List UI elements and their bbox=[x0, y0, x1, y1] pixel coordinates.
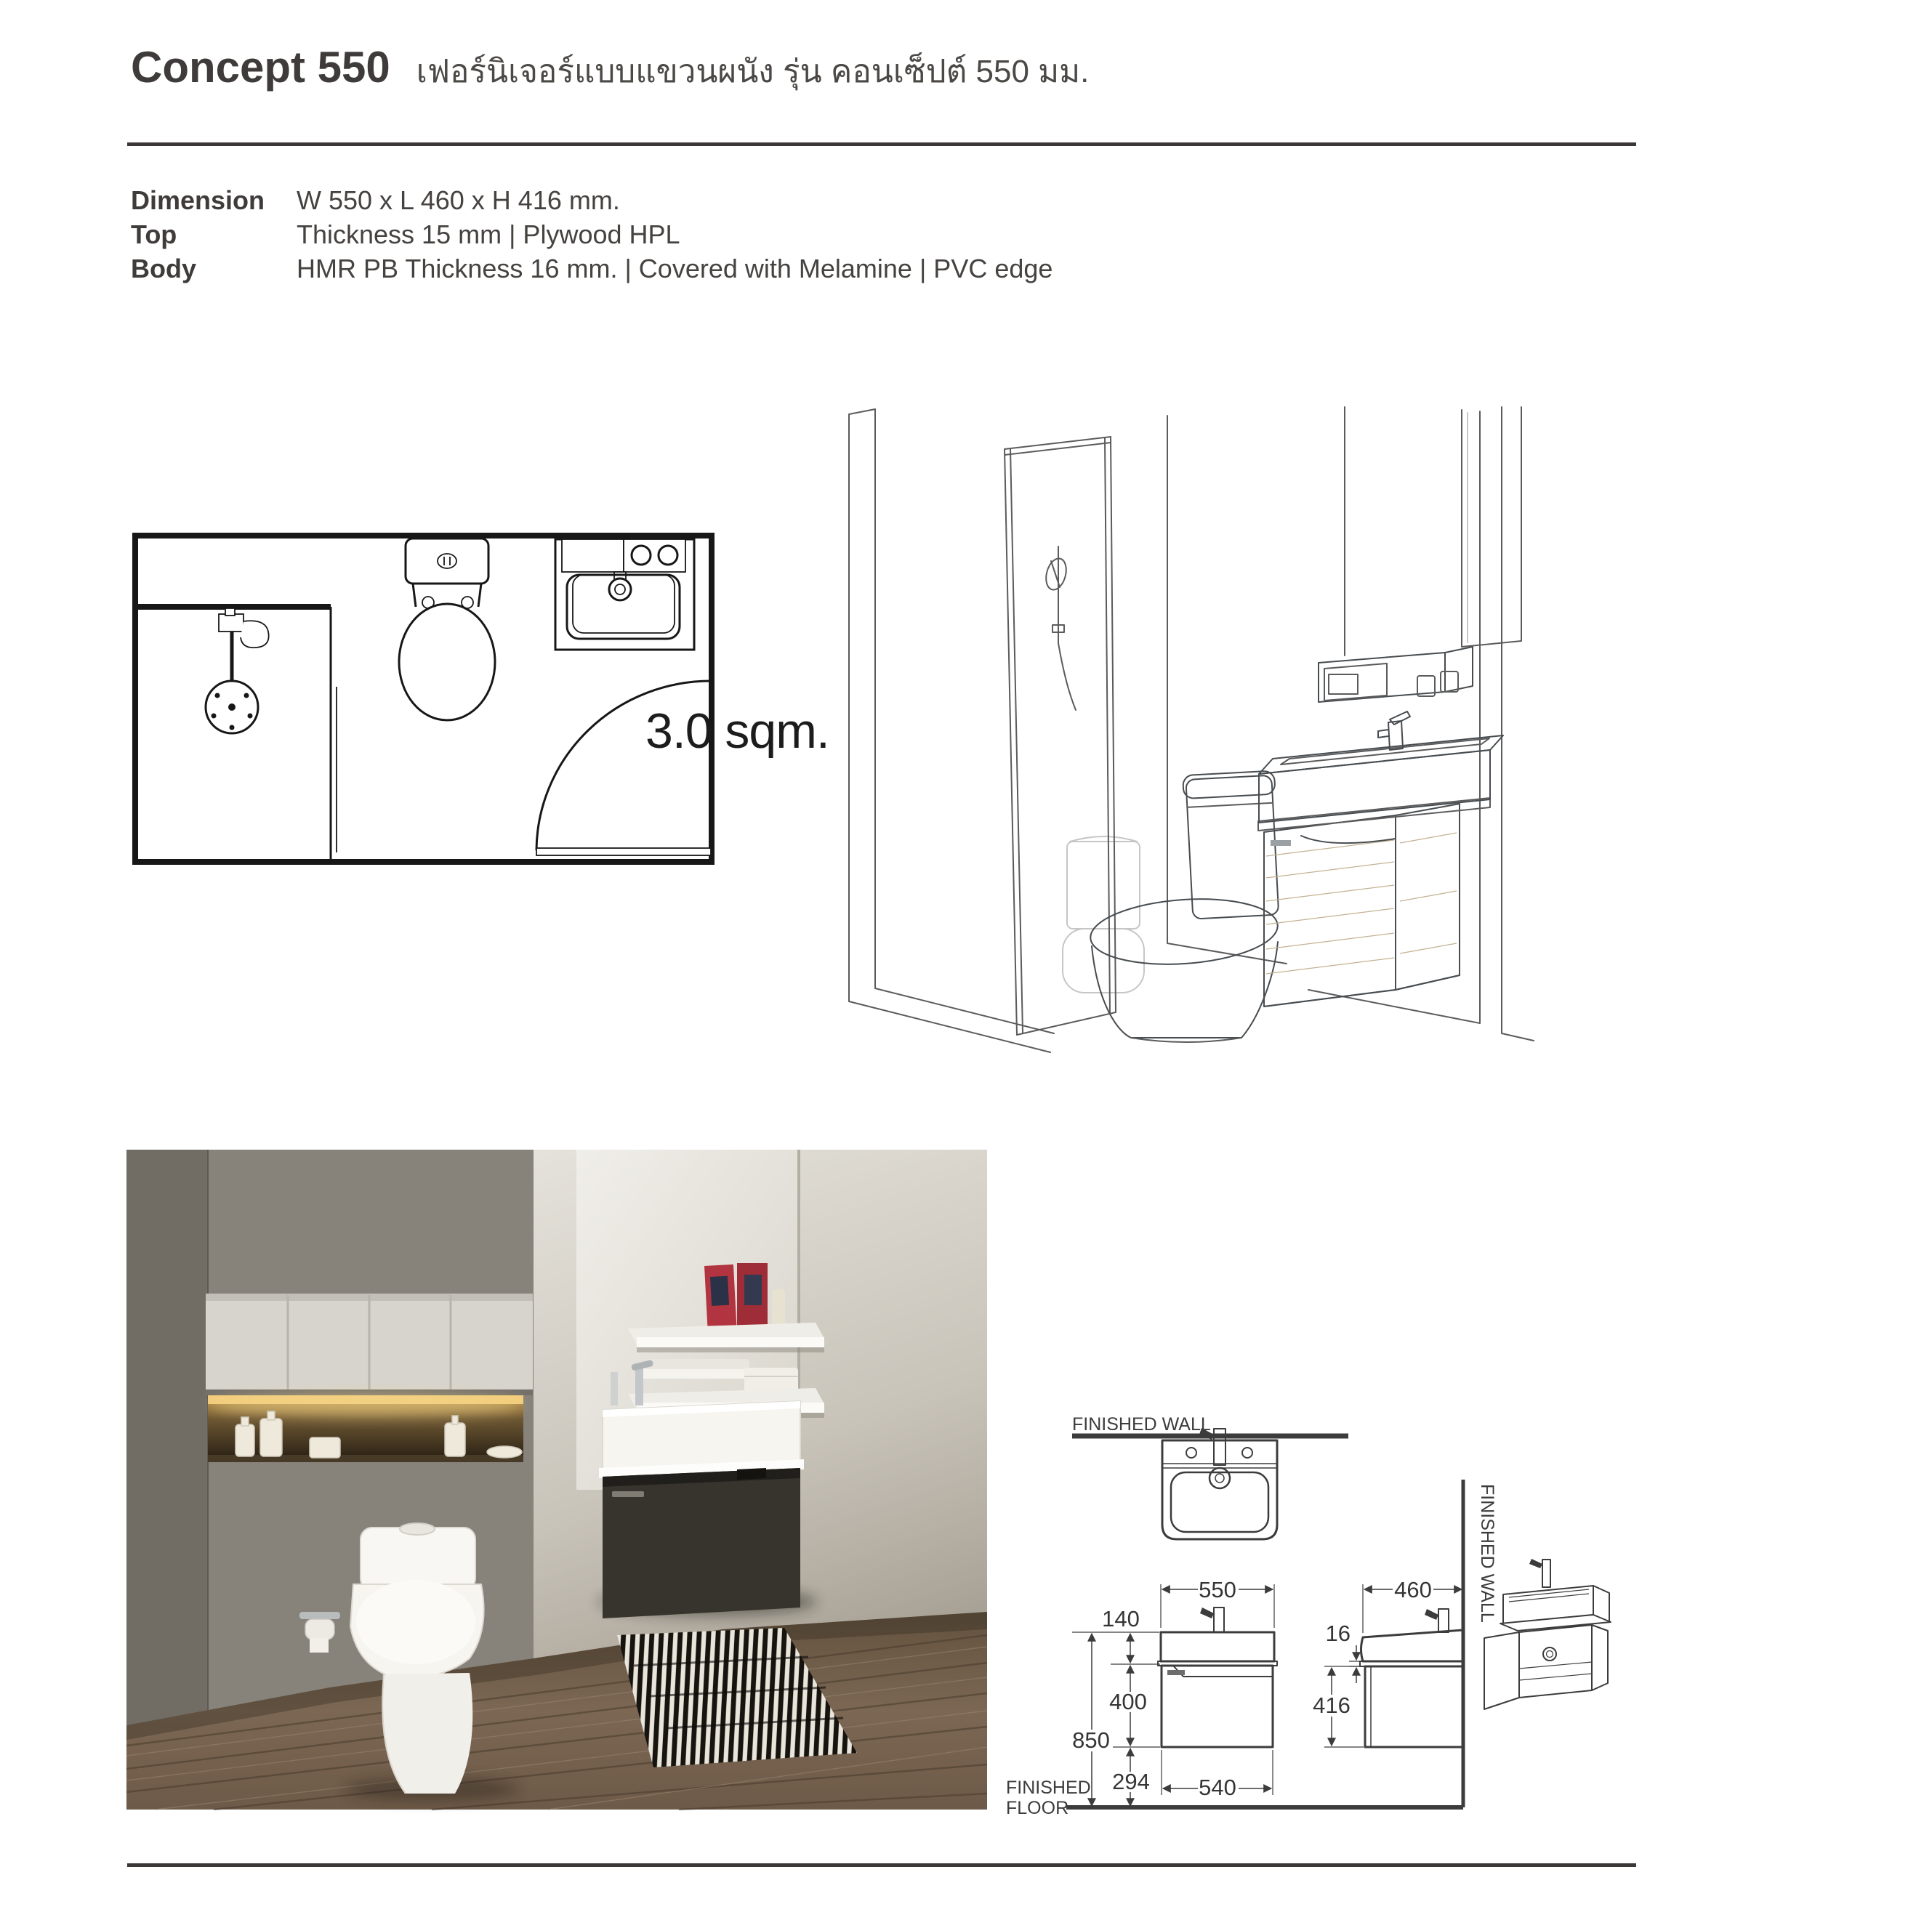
svg-text:140: 140 bbox=[1102, 1606, 1140, 1631]
header-divider bbox=[127, 142, 1636, 146]
sketch-shower-glass bbox=[1005, 437, 1116, 1035]
sketch-vanity-basin bbox=[1258, 711, 1503, 831]
photo-cabinet-logo bbox=[612, 1491, 644, 1497]
floorplan-area-label: 3.0 sqm. bbox=[645, 703, 829, 759]
sketch-cabinet-logo bbox=[1271, 840, 1291, 846]
sketch-hand-shower-icon bbox=[1043, 546, 1076, 710]
spec-value-top: Thickness 15 mm | Plywood HPL bbox=[297, 217, 680, 251]
page-title: Concept 550 bbox=[131, 42, 390, 92]
spec-row-top: Top Thickness 15 mm | Plywood HPL bbox=[131, 217, 1052, 251]
dim-460: 460 bbox=[1363, 1577, 1462, 1633]
svg-text:294: 294 bbox=[1112, 1769, 1150, 1794]
spec-label-dimension: Dimension bbox=[131, 183, 297, 217]
dim-540: 540 bbox=[1162, 1750, 1273, 1800]
spec-value-body: HMR PB Thickness 16 mm. | Covered with M… bbox=[297, 251, 1052, 286]
dim-294: 294 bbox=[1112, 1748, 1151, 1806]
photo-upper-cabinets bbox=[206, 1294, 533, 1395]
svg-text:16: 16 bbox=[1326, 1621, 1351, 1646]
finished-floor-label-line1: FINISHED bbox=[1006, 1778, 1091, 1798]
photo-gray-wall-left-panel bbox=[126, 1150, 208, 1725]
spec-label-top: Top bbox=[131, 217, 297, 251]
finished-wall-side-label: FINISHED WALL bbox=[1477, 1484, 1497, 1623]
isometric-cabinet-view bbox=[1484, 1559, 1611, 1709]
spec-label-body: Body bbox=[131, 251, 297, 286]
floorplan-shower-head-icon bbox=[206, 607, 269, 733]
svg-text:460: 460 bbox=[1394, 1577, 1432, 1602]
finished-wall-top-label: FINISHED WALL bbox=[1072, 1414, 1211, 1435]
dim-140: 140 bbox=[1072, 1606, 1160, 1664]
svg-text:416: 416 bbox=[1313, 1693, 1351, 1718]
svg-text:850: 850 bbox=[1072, 1727, 1110, 1753]
page-subtitle-thai: เฟอร์นิเจอร์แบบแขวนผนัง รุ่น คอนเซ็ปต์ 5… bbox=[416, 46, 1090, 97]
spec-table: Dimension W 550 x L 460 x H 416 mm. Top … bbox=[131, 183, 1052, 286]
catalog-page: Concept 550 เฟอร์นิเจอร์แบบแขวนผนัง รุ่น… bbox=[0, 0, 1932, 1920]
dim-400: 400 bbox=[1108, 1666, 1160, 1747]
basin-front-view bbox=[1162, 1428, 1277, 1539]
footer-divider bbox=[127, 1863, 1636, 1867]
sketch-wall-shelf bbox=[1319, 647, 1473, 702]
photo-niche bbox=[208, 1394, 523, 1462]
svg-text:550: 550 bbox=[1199, 1577, 1236, 1602]
page-header: Concept 550 เฟอร์นิเจอร์แบบแขวนผนัง รุ่น… bbox=[131, 42, 1089, 97]
sketch-vanity-cabinet bbox=[1264, 804, 1460, 1007]
spec-row-body: Body HMR PB Thickness 16 mm. | Covered w… bbox=[131, 251, 1052, 286]
spec-value-dimension: W 550 x L 460 x H 416 mm. bbox=[297, 183, 620, 217]
bathroom-photo bbox=[126, 1150, 987, 1810]
floorplan-toilet-icon bbox=[399, 539, 495, 720]
sketch-toilet-behind-glass bbox=[1063, 836, 1144, 993]
svg-text:540: 540 bbox=[1199, 1775, 1236, 1800]
dim-416: 416 bbox=[1311, 1666, 1364, 1747]
sketch-faucet-icon bbox=[1378, 711, 1410, 750]
sketch-toilet bbox=[1088, 771, 1281, 1042]
bathroom-3d-sketch bbox=[836, 407, 1534, 1054]
floorplan-sink-icon bbox=[555, 539, 694, 650]
dim-550: 550 bbox=[1161, 1577, 1274, 1628]
dimension-drawing: FINISHED WALL bbox=[996, 1403, 1686, 1853]
floor-plan-drawing: 3.0 sqm. bbox=[132, 533, 715, 865]
finished-floor-label-line2: FLOOR bbox=[1006, 1798, 1068, 1818]
svg-text:400: 400 bbox=[1109, 1689, 1147, 1714]
sketch-room-lines bbox=[849, 407, 1534, 1052]
vanity-front-view bbox=[1158, 1608, 1277, 1747]
sketch-mirror bbox=[1462, 407, 1521, 647]
vanity-side-view bbox=[1360, 1609, 1463, 1747]
spec-row-dimension: Dimension W 550 x L 460 x H 416 mm. bbox=[131, 183, 1052, 217]
photo-cabinet bbox=[603, 1468, 800, 1618]
